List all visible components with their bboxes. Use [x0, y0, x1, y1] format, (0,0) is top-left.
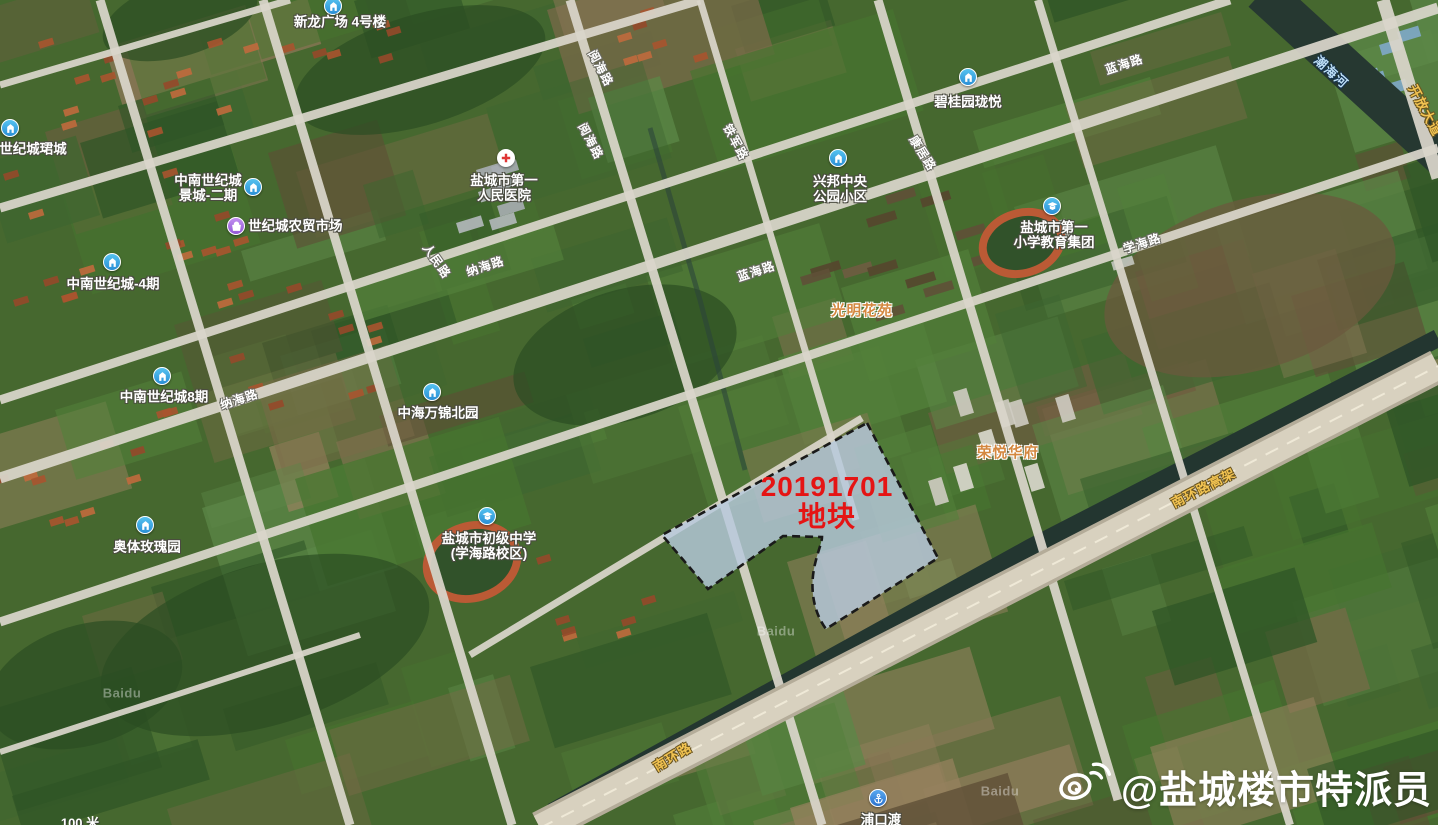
- scale-label: 100 米: [61, 813, 99, 825]
- market-icon: [227, 217, 245, 235]
- residence-icon: [153, 367, 171, 385]
- poi-label-yancheng-first-peoples-hospital: 盐城市第一人民医院: [470, 173, 538, 203]
- satellite-map-canvas[interactable]: [0, 0, 1438, 825]
- poi-label-aoti-rose-garden: 奥体玫瑰园: [113, 540, 181, 555]
- poi-label-line: 小学教育集团: [1014, 235, 1095, 250]
- poi-label-line: 人民医院: [470, 188, 538, 203]
- residence-icon: [829, 149, 847, 167]
- poi-label-line: 公园小区: [813, 189, 867, 204]
- parcel-label: 20191701 地块: [761, 472, 894, 532]
- poi-label-shijicheng-farm-market: 世纪城农贸市场: [248, 219, 343, 234]
- poi-label-line: 中南世纪城-4期: [66, 277, 159, 292]
- poi-label-line: (学海路校区): [442, 546, 537, 561]
- map-root: 20191701 地块 100 米 @盐城楼市特派员 新龙广场 4号楼世纪城珺城…: [0, 0, 1438, 825]
- poi-label-zhongnan-shijicheng-jingcheng-phase2: 中南世纪城景城-二期: [174, 173, 242, 203]
- parcel-word: 地块: [761, 502, 894, 532]
- poi-label-line: 盐城市第一: [1014, 220, 1095, 235]
- watermark-text: @盐城楼市特派员: [1121, 759, 1432, 814]
- area-label-rongyue-huafu: 荣悦华府: [977, 442, 1039, 463]
- satellite-imagery: [0, 0, 1438, 825]
- poi-label-zhongnan-shijicheng-phase8: 中南世纪城8期: [120, 390, 209, 405]
- baidu-watermark-2: Baidu: [981, 784, 1020, 799]
- residence-icon: [244, 178, 262, 196]
- poi-label-xinlong-plaza-building4: 新龙广场 4号楼: [294, 15, 386, 30]
- residence-icon: [103, 253, 121, 271]
- residence-icon: [423, 383, 441, 401]
- hospital-icon: [497, 149, 515, 167]
- poi-label-line: 世纪城农贸市场: [248, 219, 343, 234]
- poi-label-shijicheng-juncheng: 世纪城珺城: [0, 142, 67, 157]
- poi-label-pukou-ferry: 浦口渡: [861, 813, 902, 825]
- residence-icon: [959, 68, 977, 86]
- poi-label-line: 盐城市初级中学: [442, 531, 537, 546]
- ferry-icon: [869, 789, 887, 807]
- poi-label-line: 兴邦中央: [813, 174, 867, 189]
- school-icon: [1043, 197, 1061, 215]
- poi-label-line: 盐城市第一: [470, 173, 538, 188]
- parcel-id: 20191701: [761, 472, 894, 502]
- poi-label-line: 新龙广场 4号楼: [294, 15, 386, 30]
- poi-label-line: 浦口渡: [861, 813, 902, 825]
- poi-label-zhongnan-shijicheng-phase4: 中南世纪城-4期: [66, 277, 159, 292]
- poi-label-line: 世纪城珺城: [0, 142, 67, 157]
- poi-label-yancheng-junior-middle-school-xuehai: 盐城市初级中学(学海路校区): [442, 531, 537, 561]
- residence-icon: [1, 119, 19, 137]
- area-label-guangming-huayuan: 光明花苑: [831, 300, 893, 321]
- poi-label-biguiyuan-longyue: 碧桂园珑悦: [934, 95, 1002, 110]
- poi-label-line: 中海万锦北园: [398, 406, 479, 421]
- weibo-icon: [1055, 756, 1111, 817]
- school-icon: [478, 507, 496, 525]
- poi-label-xingbang-central-park-community: 兴邦中央公园小区: [813, 174, 867, 204]
- poi-label-line: 景城-二期: [174, 188, 242, 203]
- poi-label-line: 奥体玫瑰园: [113, 540, 181, 555]
- poi-label-yancheng-first-primary-school-group: 盐城市第一小学教育集团: [1014, 220, 1095, 250]
- poi-label-zhonghai-wanjin-north-garden: 中海万锦北园: [398, 406, 479, 421]
- baidu-watermark-0: Baidu: [103, 686, 142, 701]
- baidu-watermark-1: Baidu: [757, 624, 796, 639]
- poi-label-line: 中南世纪城8期: [120, 390, 209, 405]
- weibo-watermark: @盐城楼市特派员: [1055, 756, 1432, 817]
- residence-icon: [136, 516, 154, 534]
- poi-label-line: 中南世纪城: [174, 173, 242, 188]
- poi-label-line: 碧桂园珑悦: [934, 95, 1002, 110]
